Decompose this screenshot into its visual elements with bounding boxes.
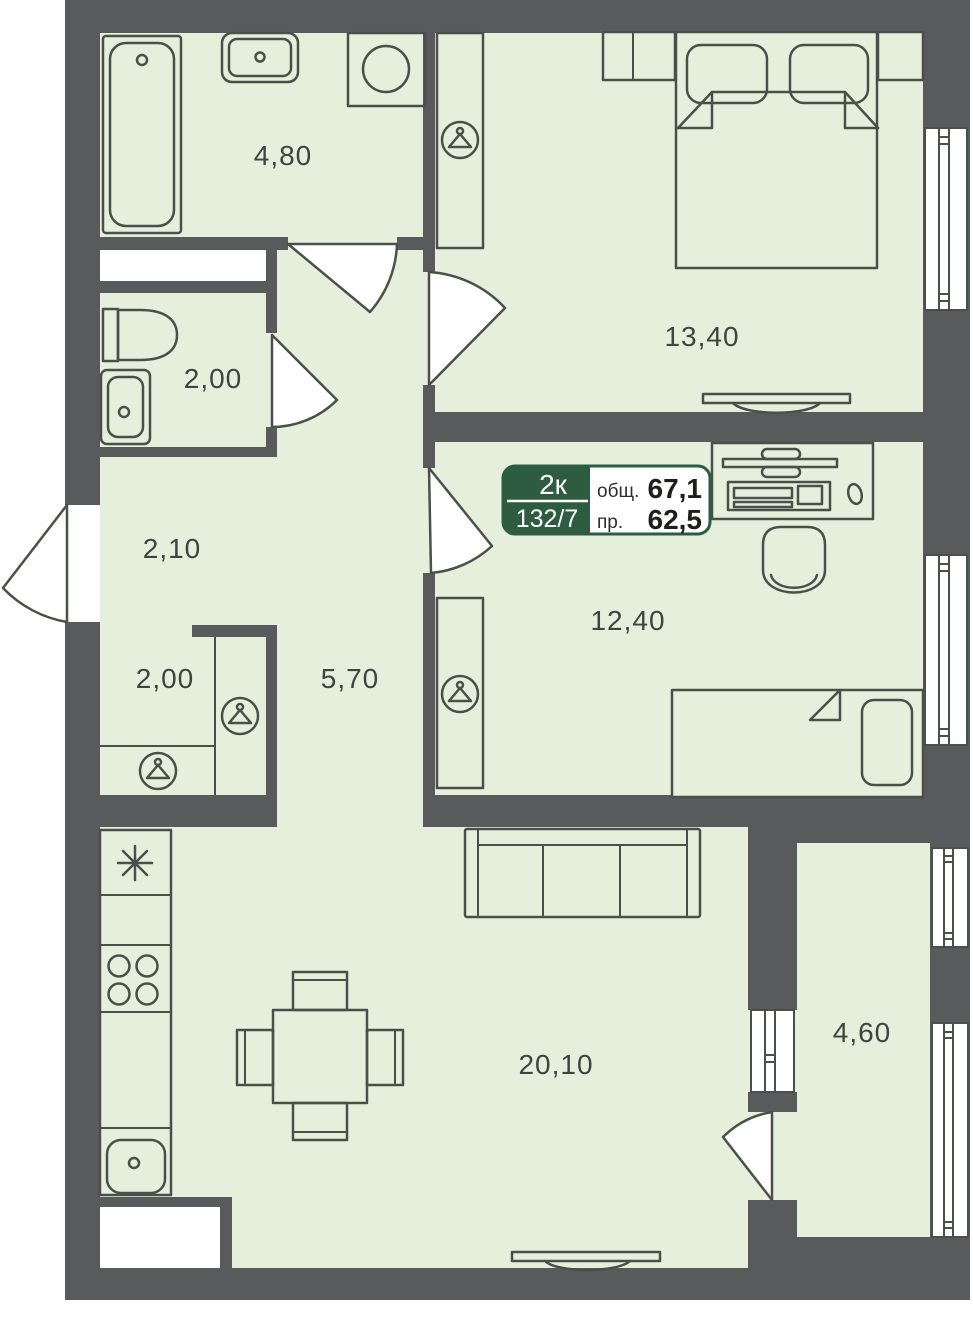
door-entrance — [3, 505, 100, 622]
apartment-info-badge: 2к 132/7 общ. 67,1 пр. 62,5 — [503, 466, 710, 535]
vent-shaft-bottom — [100, 1207, 220, 1268]
window-bedroom — [925, 128, 967, 310]
badge-rooms-count: 2к — [539, 469, 568, 500]
badge-living-value: 62,5 — [648, 504, 703, 535]
dining-table — [273, 1010, 367, 1103]
badge-unit-number: 132/7 — [516, 505, 579, 533]
fridge-asterisk-icon — [118, 846, 152, 880]
vent-shaft-top — [100, 250, 266, 281]
single-bed — [672, 690, 923, 797]
window-balcony-bottom — [932, 1023, 968, 1237]
badge-living-label: пр. — [597, 512, 623, 533]
label-child-room: 12,40 — [590, 605, 665, 636]
window-living-balcony — [751, 1010, 794, 1092]
label-toilet: 2,00 — [184, 363, 243, 394]
label-hall: 2,10 — [143, 533, 202, 564]
label-wardrobe: 2,00 — [136, 663, 195, 694]
floor-plan-page: 4,80 2,00 2,10 2,00 5,70 13,40 12,40 20,… — [0, 0, 973, 1318]
label-kitchen-living: 20,10 — [518, 1049, 593, 1080]
label-balcony: 4,60 — [833, 1017, 892, 1048]
label-corridor: 5,70 — [321, 663, 380, 694]
label-bathroom: 4,80 — [254, 140, 313, 171]
badge-total-label: общ. — [597, 481, 639, 502]
badge-total-value: 67,1 — [648, 473, 703, 504]
window-balcony-top — [932, 848, 968, 947]
double-bed — [676, 32, 878, 268]
window-child-room — [925, 555, 967, 745]
label-bedroom: 13,40 — [664, 321, 739, 352]
floor-plan-svg: 4,80 2,00 2,10 2,00 5,70 13,40 12,40 20,… — [0, 0, 973, 1318]
